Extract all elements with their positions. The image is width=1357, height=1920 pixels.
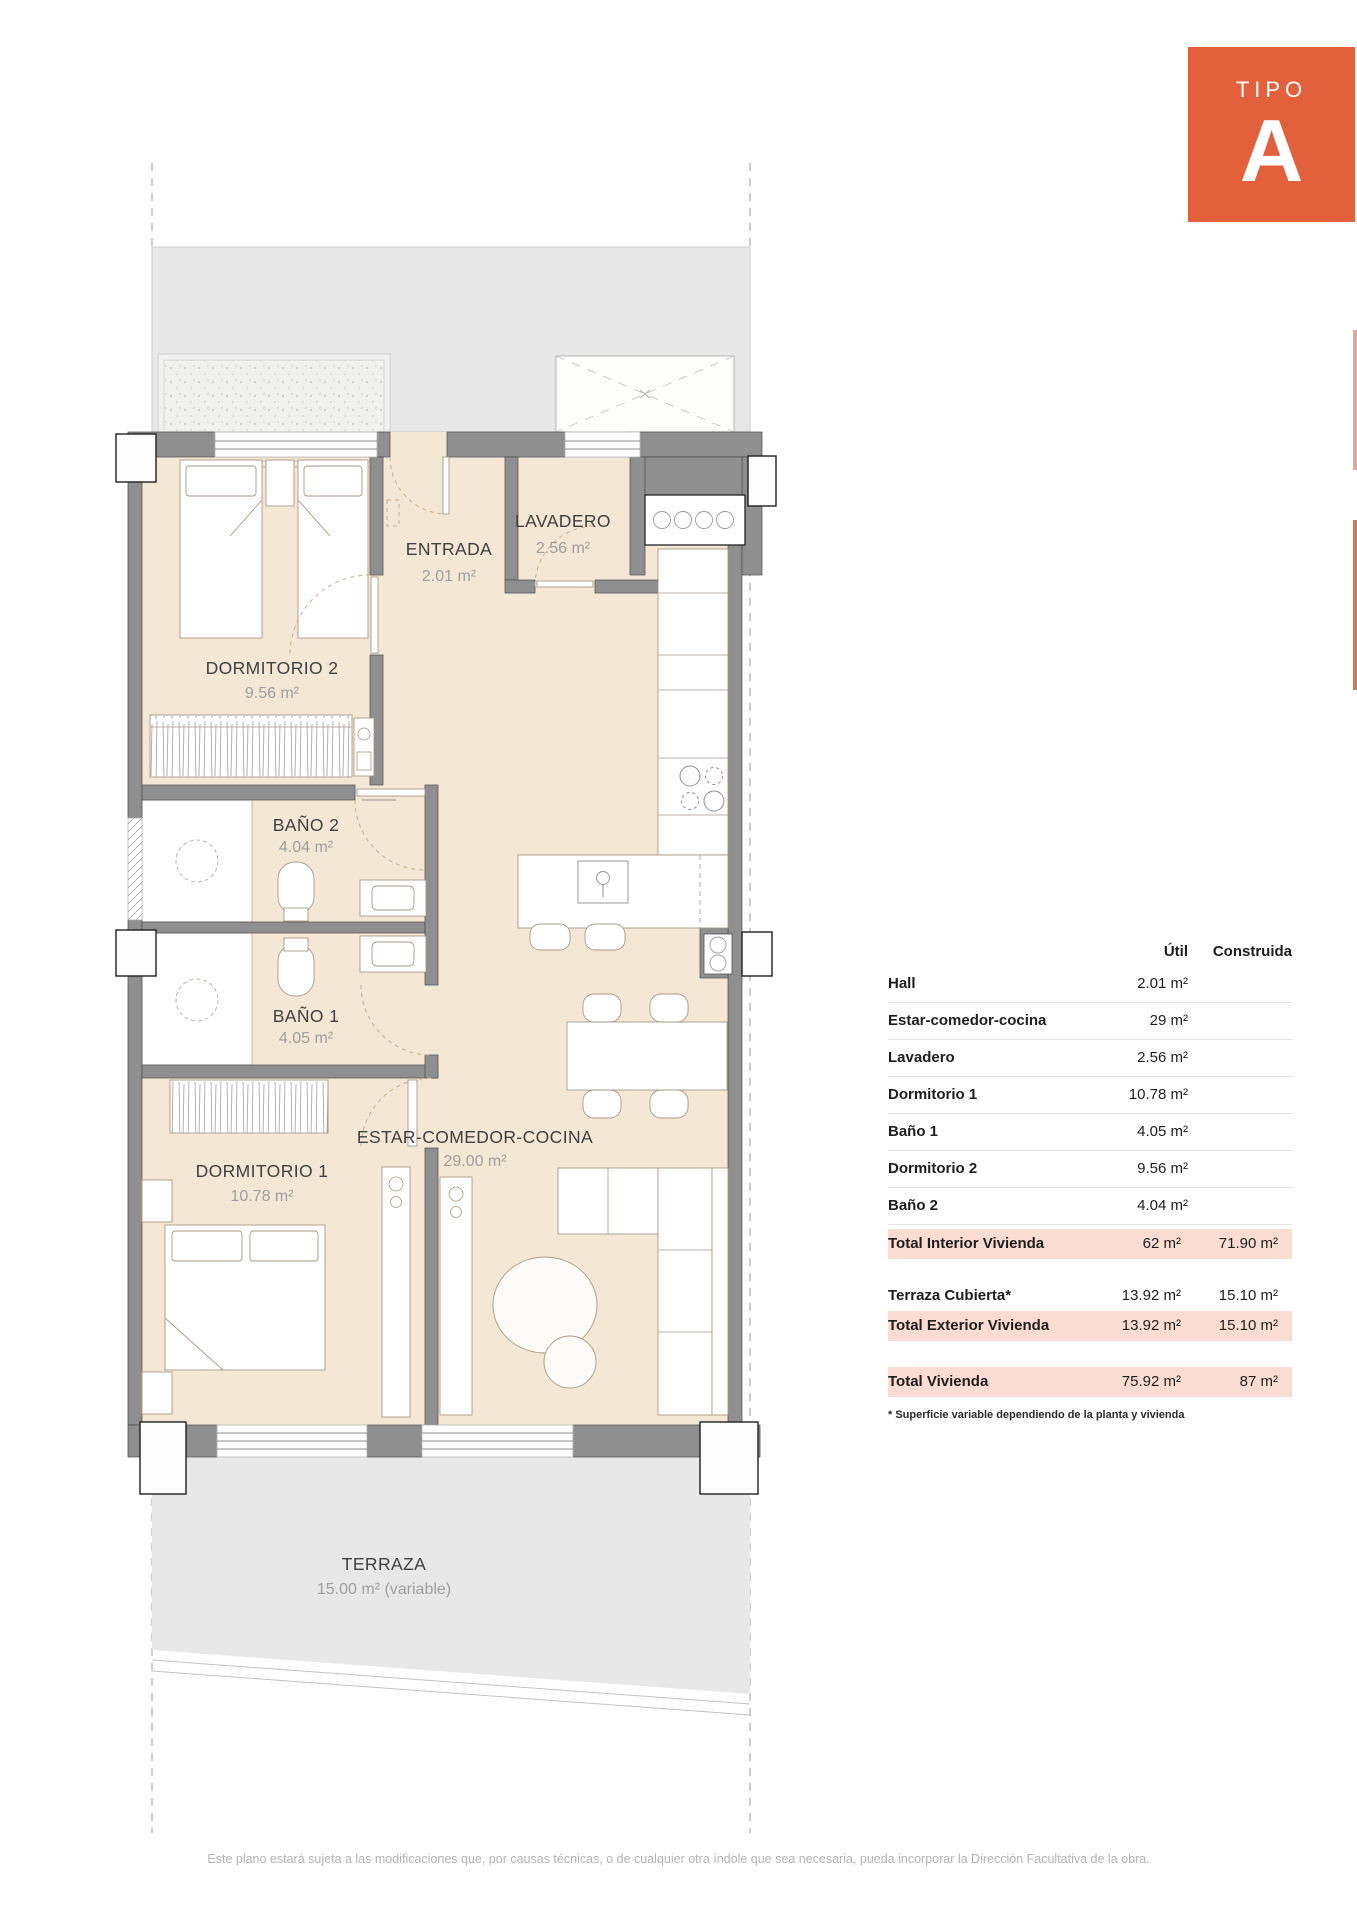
room-label-dormitorio-2: DORMITORIO 2 bbox=[206, 658, 339, 678]
disclaimer-text: Este plano estará sujeta a las modificac… bbox=[0, 1852, 1357, 1866]
table-row: Baño 2 4.04 m² bbox=[888, 1188, 1292, 1225]
toilet-icon bbox=[278, 862, 314, 914]
room-area-bano-2: 4.04 m² bbox=[279, 839, 334, 856]
skylight bbox=[556, 356, 734, 432]
floor-plan-page: DORMITORIO 2 9.56 m² ENTRADA 2.01 m² LAV… bbox=[0, 0, 1357, 1920]
room-label-entrada: ENTRADA bbox=[406, 539, 492, 559]
washbasin-icon bbox=[360, 936, 426, 972]
total-vivienda-row: Total Vivienda 75.92 m² 87 m² bbox=[888, 1367, 1292, 1397]
room-label-bano-2: BAÑO 2 bbox=[273, 814, 340, 835]
room-area-entrada: 2.01 m² bbox=[422, 568, 477, 585]
total-interior-row: Total Interior Vivienda 62 m² 71.90 m² bbox=[888, 1229, 1292, 1259]
table-row: Baño 1 4.05 m² bbox=[888, 1114, 1292, 1151]
table-row: Estar-comedor-cocina 29 m² bbox=[888, 1003, 1292, 1040]
table-row: Hall 2.01 m² bbox=[888, 966, 1292, 1003]
ac-unit bbox=[704, 934, 732, 974]
shower-bano1 bbox=[142, 933, 252, 1065]
room-label-terraza: TERRAZA bbox=[342, 1554, 426, 1574]
page-edge-strip-bottom bbox=[1353, 520, 1357, 690]
room-label-lavadero: LAVADERO bbox=[515, 511, 611, 531]
type-badge: TIPO A bbox=[1188, 47, 1355, 222]
table-footnote: * Superficie variable dependiendo de la … bbox=[888, 1409, 1292, 1421]
washbasin-icon bbox=[360, 880, 426, 916]
room-area-lavadero: 2.56 m² bbox=[536, 540, 591, 557]
room-area-estar: 29.00 m² bbox=[443, 1153, 507, 1170]
room-area-dormitorio-1: 10.78 m² bbox=[230, 1188, 294, 1205]
room-area-dormitorio-2: 9.56 m² bbox=[245, 685, 300, 702]
table-row: Lavadero 2.56 m² bbox=[888, 1040, 1292, 1077]
room-area-terraza: 15.00 m² (variable) bbox=[317, 1581, 451, 1598]
table-header: Útil Construida bbox=[888, 938, 1292, 966]
toilet-icon bbox=[278, 944, 314, 996]
shower-bano2 bbox=[142, 800, 252, 922]
header-construida: Construida bbox=[1188, 938, 1292, 966]
total-exterior-row: Total Exterior Vivienda 13.92 m² 15.10 m… bbox=[888, 1311, 1292, 1341]
terraza-area bbox=[152, 1457, 750, 1694]
type-badge-label: TIPO bbox=[1188, 77, 1355, 103]
dining-table bbox=[567, 1022, 727, 1090]
kitchen-counter bbox=[658, 549, 728, 855]
table-row: Dormitorio 2 9.56 m² bbox=[888, 1151, 1292, 1188]
type-badge-letter: A bbox=[1188, 105, 1355, 197]
header-util: Útil bbox=[1096, 938, 1188, 966]
desk-unit bbox=[382, 1167, 410, 1417]
gravel-patch bbox=[164, 360, 384, 432]
page-edge-strip-top bbox=[1353, 330, 1357, 470]
terraza-cubierta-row: Terraza Cubierta* 13.92 m² 15.10 m² bbox=[888, 1281, 1292, 1311]
table-row: Dormitorio 1 10.78 m² bbox=[888, 1077, 1292, 1114]
room-label-dormitorio-1: DORMITORIO 1 bbox=[196, 1161, 329, 1181]
room-label-estar: ESTAR-COMEDOR-COCINA bbox=[357, 1127, 593, 1147]
room-area-bano-1: 4.05 m² bbox=[279, 1030, 334, 1047]
tv-unit bbox=[440, 1177, 472, 1415]
room-label-bano-1: BAÑO 1 bbox=[273, 1005, 340, 1026]
area-table: Útil Construida Hall 2.01 m² Estar-comed… bbox=[888, 938, 1292, 1421]
